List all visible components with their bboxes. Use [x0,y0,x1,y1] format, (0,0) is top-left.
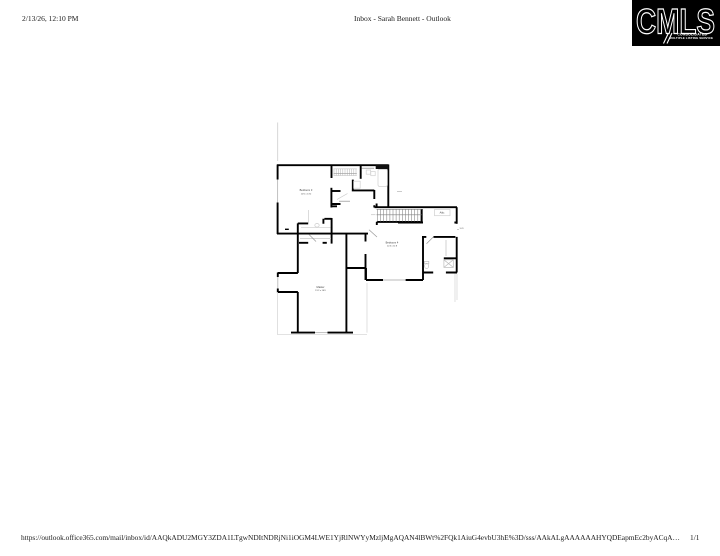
svg-text:12'4 x 11'8: 12'4 x 11'8 [387,246,398,248]
svg-text:15'2 x 16'0: 15'2 x 16'0 [315,290,326,292]
svg-text:Bedroom 4: Bedroom 4 [386,240,399,244]
svg-text:W/D: W/D [460,228,465,230]
svg-text:Master: Master [317,285,325,289]
svg-text:Attic: Attic [440,212,445,215]
svg-text:12'6 x 13'2: 12'6 x 13'2 [301,193,312,195]
svg-text:Bedroom 3: Bedroom 3 [300,188,313,192]
